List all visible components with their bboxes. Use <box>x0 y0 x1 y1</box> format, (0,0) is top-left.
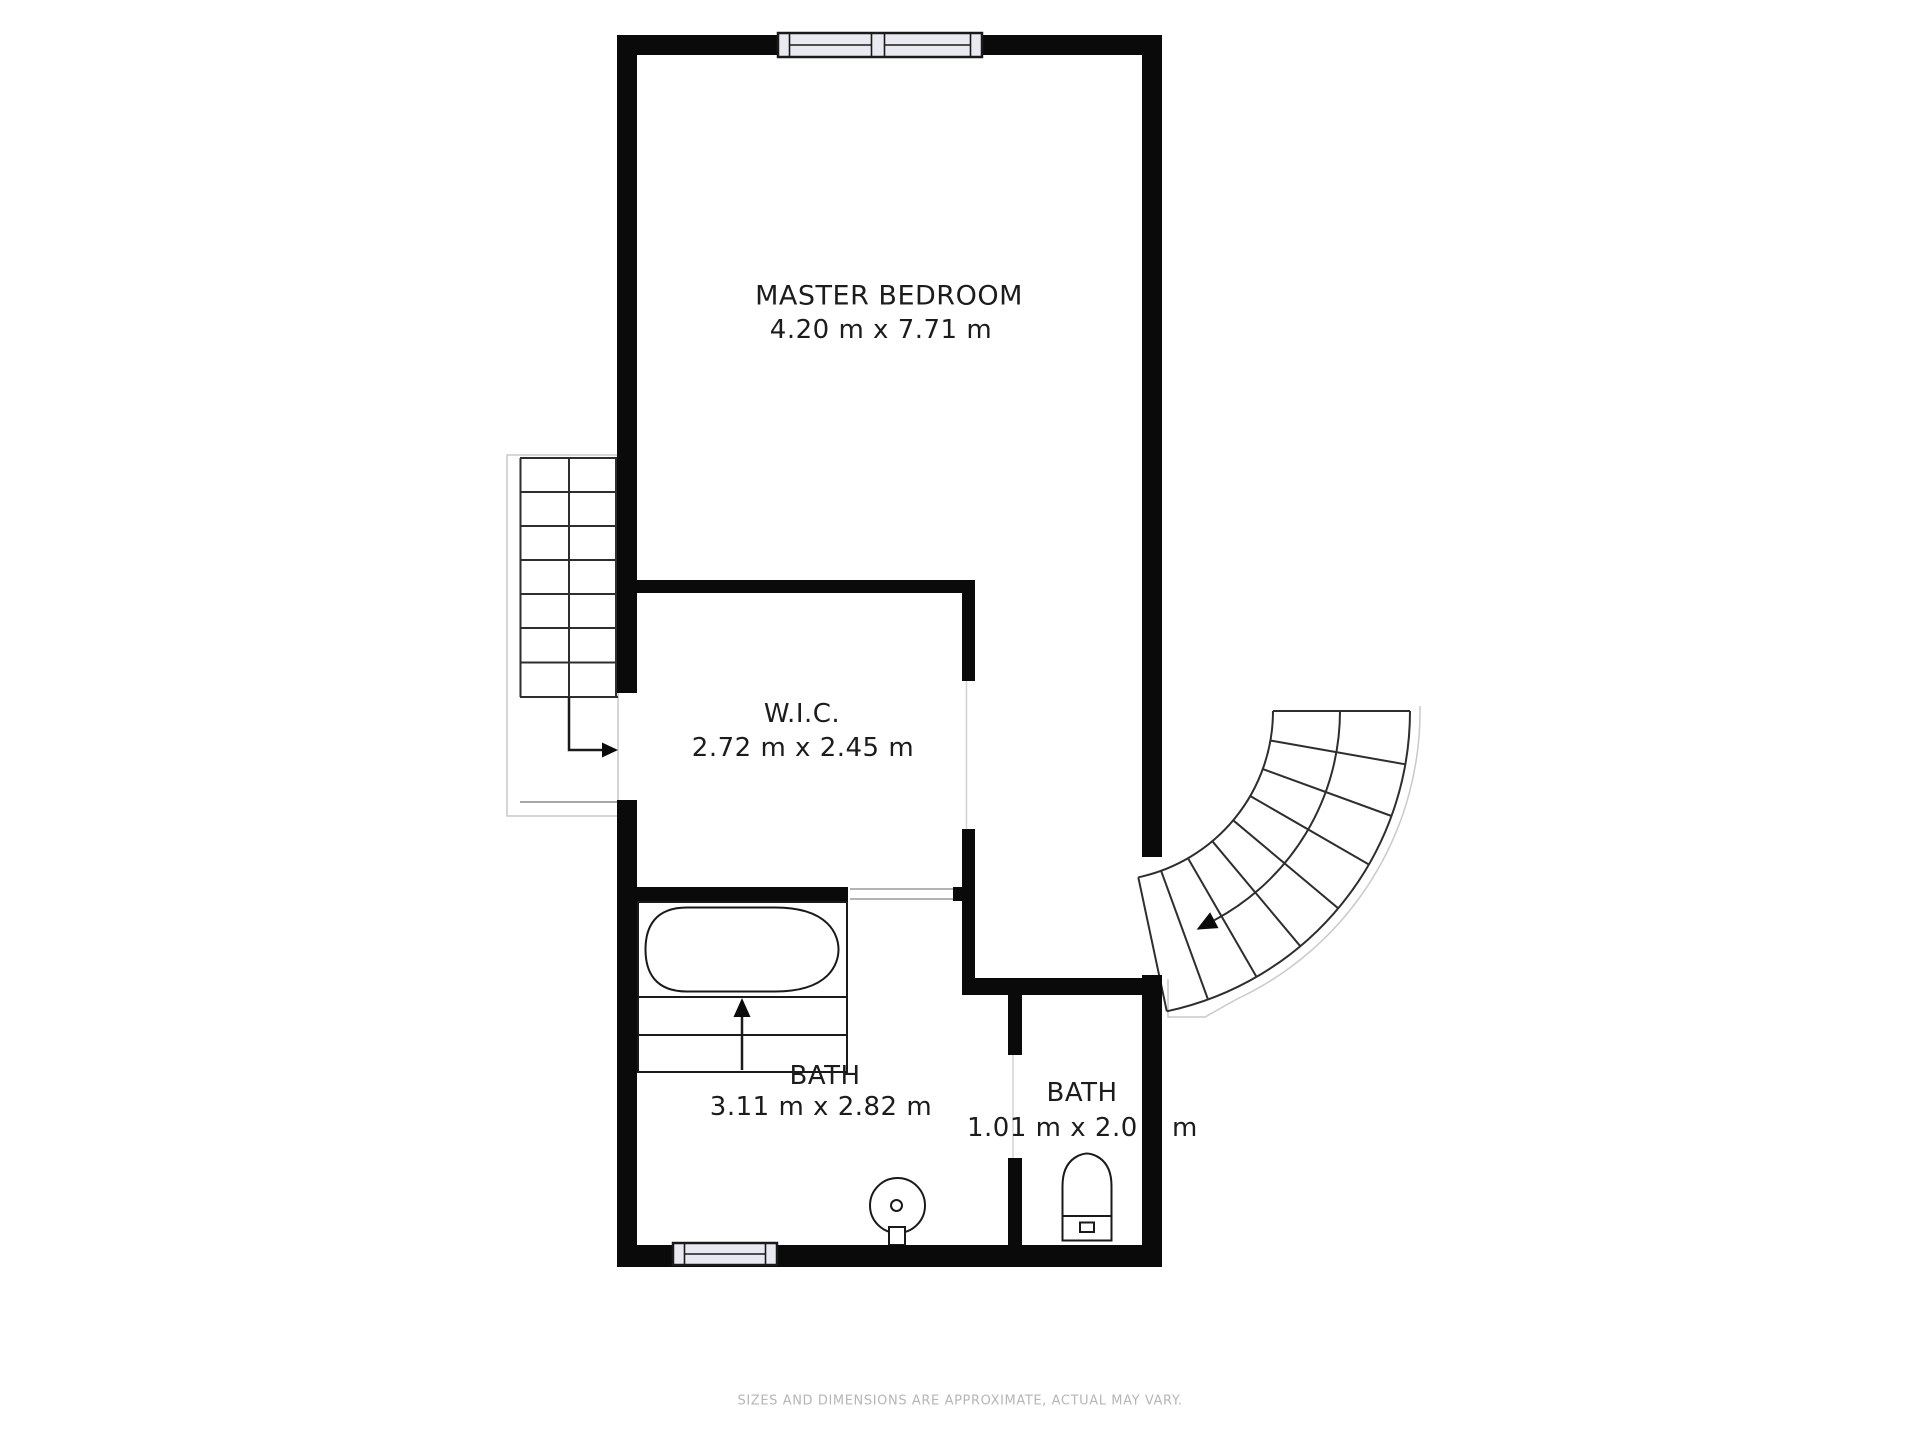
stairs-direction-arrow <box>569 697 618 758</box>
window-icon-top <box>778 33 982 57</box>
wall-baths-divider-lower <box>1008 1158 1022 1245</box>
room-label-wic: W.I.C. <box>764 699 840 729</box>
wall-right-upper <box>1142 35 1162 857</box>
room-label-bath-small: BATH <box>1046 1078 1117 1108</box>
wall-wic-top <box>637 580 974 593</box>
wall-baths-divider-upper <box>1008 993 1022 1055</box>
room-dims-bath-small-unit: m <box>1172 1113 1198 1143</box>
wall-wic-right-upper <box>962 580 975 681</box>
wall-hall-bottom <box>962 978 1162 995</box>
toilet-icon <box>1063 1154 1112 1241</box>
room-dims-master-bedroom: 4.20 m x 7.71 m <box>770 315 992 345</box>
disclaimer-text: SIZES AND DIMENSIONS ARE APPROXIMATE, AC… <box>738 1394 1183 1409</box>
room-label-master-bedroom: MASTER BEDROOM <box>755 281 1023 312</box>
room-dims-wic: 2.72 m x 2.45 m <box>692 733 914 763</box>
stairs-direction-arrow <box>1197 711 1340 930</box>
floorplan-canvas: MASTER BEDROOM 4.20 m x 7.71 m W.I.C. 2.… <box>0 0 1920 1440</box>
floorplan-drawing <box>0 0 1920 1440</box>
wall-left-lower <box>617 800 637 1267</box>
wall-door-nub <box>953 887 962 901</box>
room-dims-bath-small: 1.01 m x 2.0 <box>967 1113 1138 1143</box>
wall-wic-right-lower <box>962 829 975 995</box>
sink-icon <box>870 1178 925 1245</box>
room-label-bath-large: BATH <box>789 1061 860 1091</box>
curved-staircase-icon <box>1138 706 1420 1017</box>
wall-left-upper <box>617 35 637 693</box>
wall-right-lower <box>1142 975 1162 1267</box>
bathtub-icon <box>638 902 847 1072</box>
window-icon-bottom <box>673 1243 777 1265</box>
wall-bath-top <box>637 887 848 901</box>
straight-staircase-icon <box>507 455 618 816</box>
room-dims-bath-large: 3.11 m x 2.82 m <box>710 1092 932 1122</box>
